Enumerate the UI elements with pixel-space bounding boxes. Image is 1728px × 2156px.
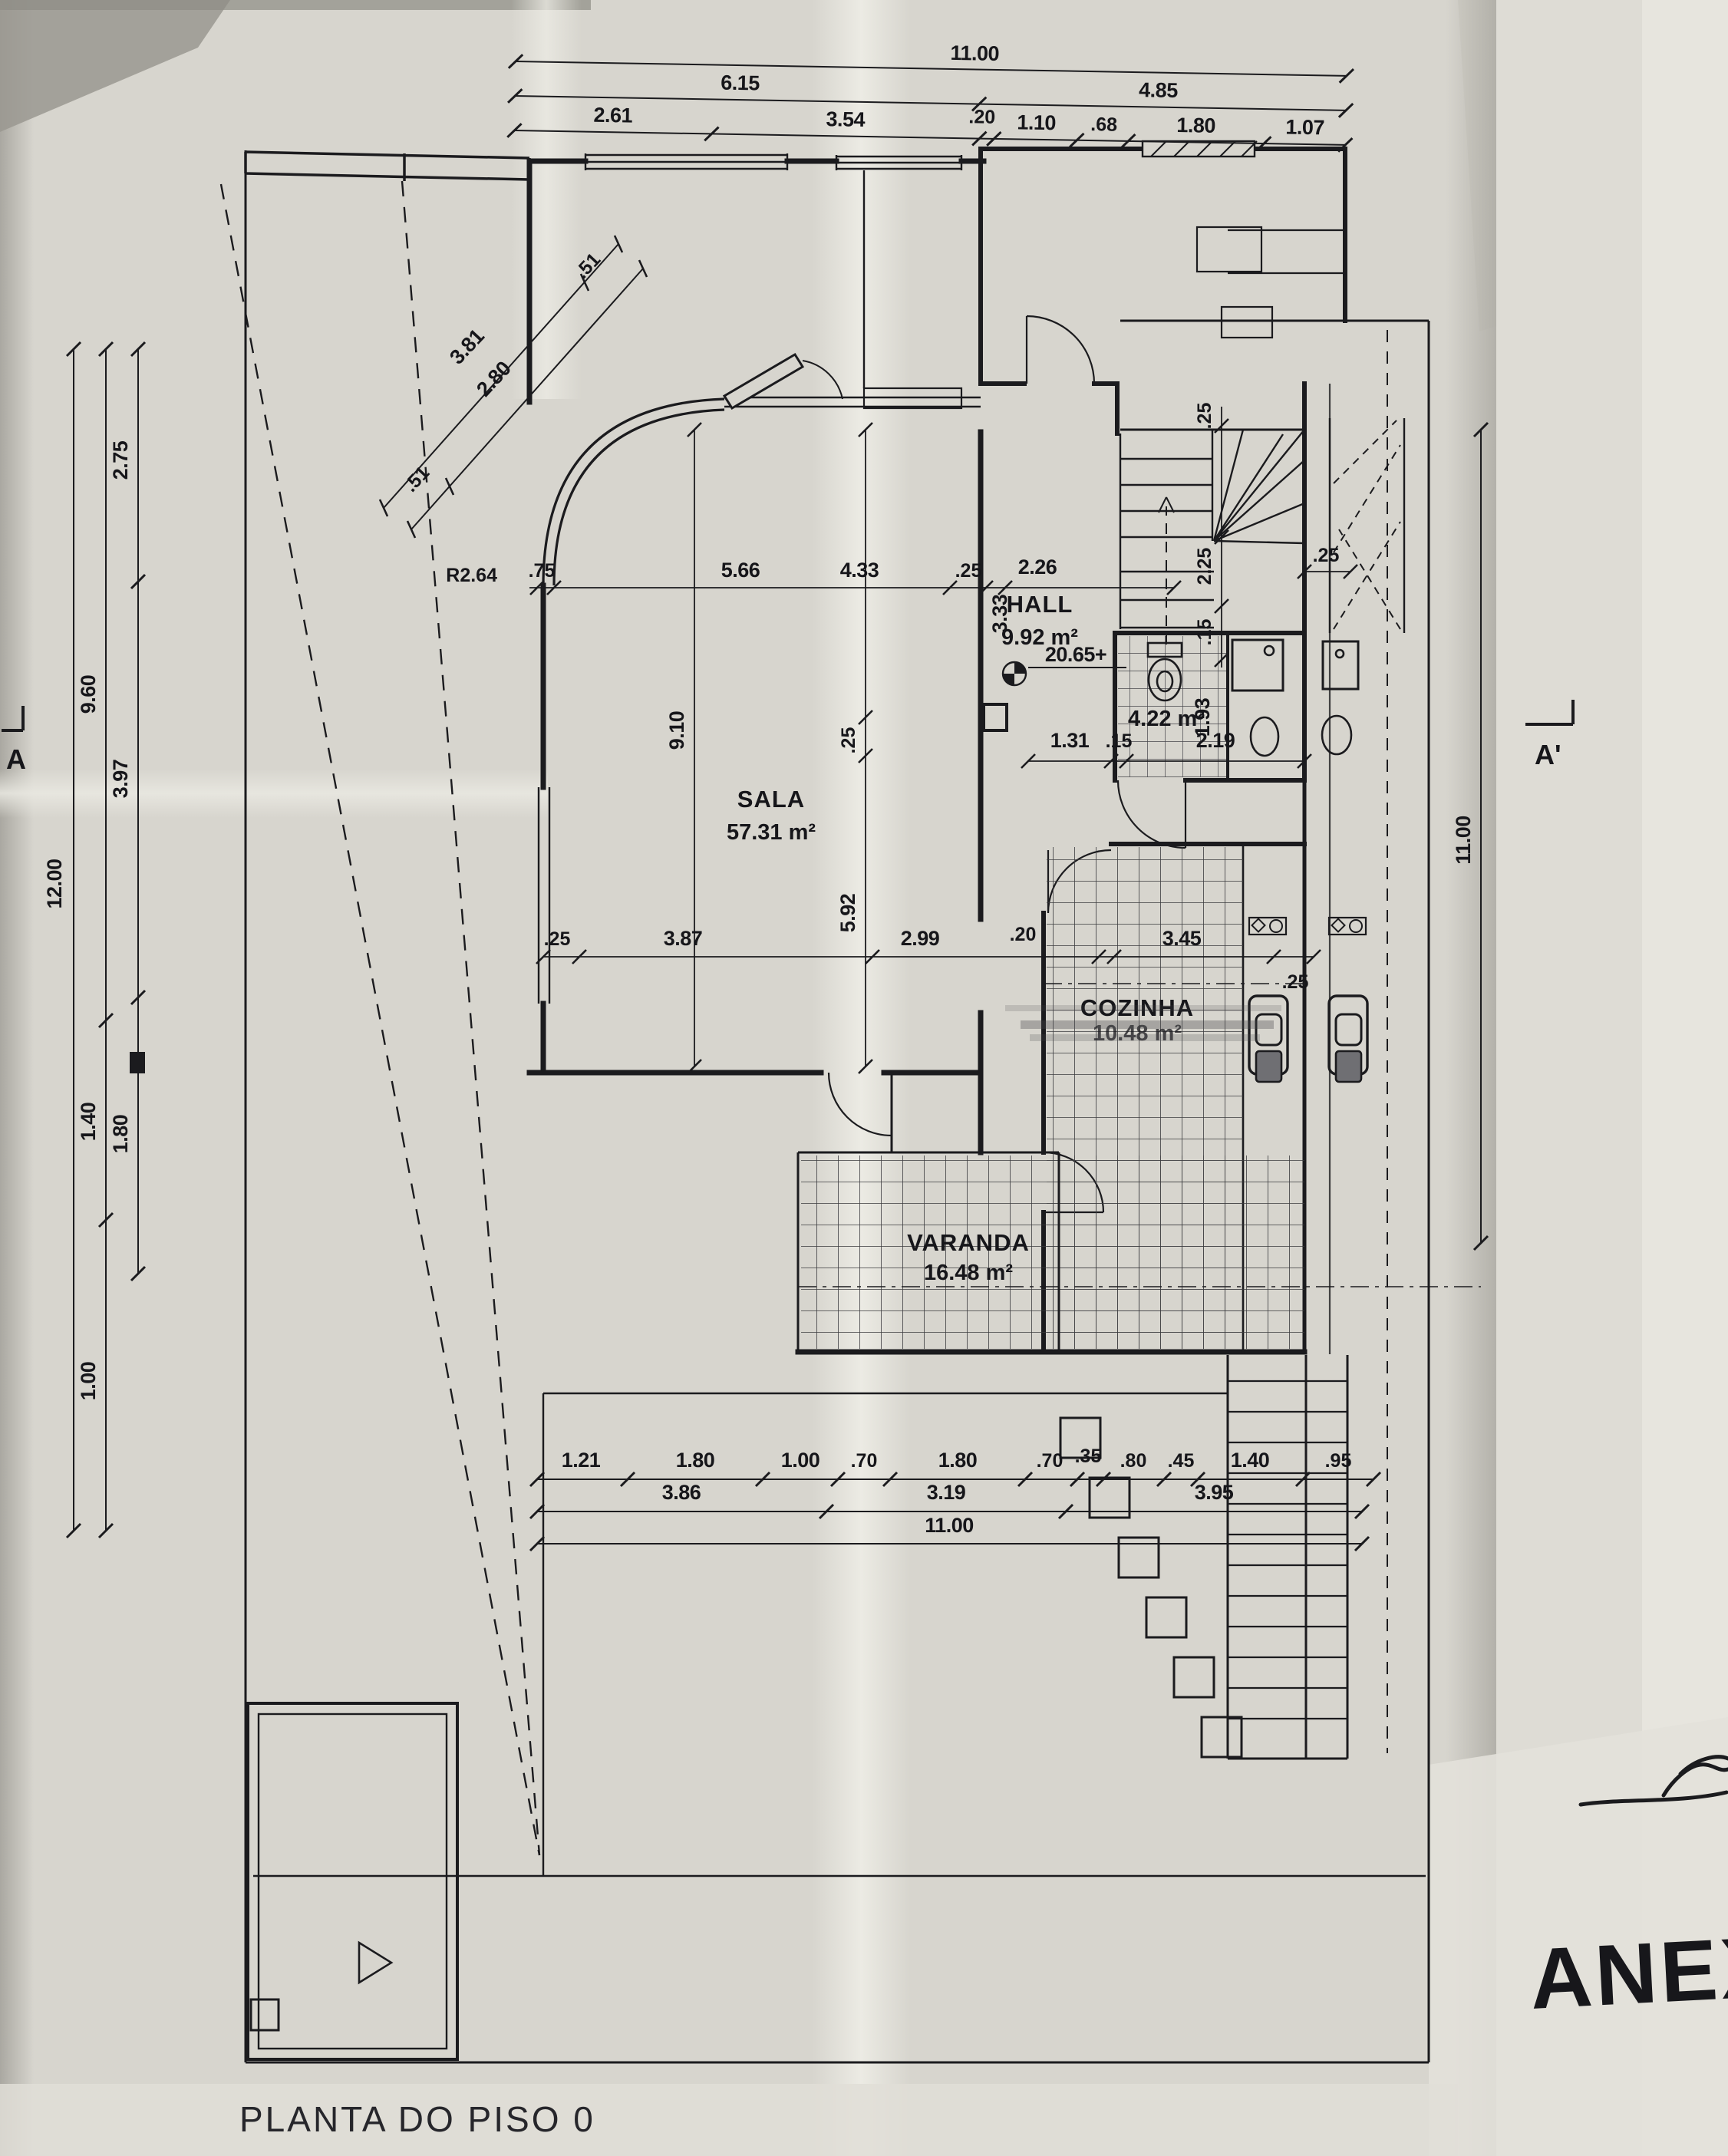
dim-label: 2.61 <box>593 104 633 127</box>
dim-label: 4.85 <box>1139 78 1179 102</box>
dim-label: 1.31 <box>1050 729 1090 752</box>
dim-label: 1.00 <box>781 1449 820 1472</box>
varanda-tiles <box>801 1155 1304 1349</box>
dim-label: 3.86 <box>662 1481 701 1504</box>
dim-label: .25 <box>1194 403 1215 430</box>
dim-label: 3.97 <box>109 760 132 799</box>
photographed-floor-plan: 11.00 6.15 4.85 2.61 3.54 .20 1.10 .68 1… <box>0 0 1728 2156</box>
dim-label: .25 <box>838 727 859 754</box>
dim-label: .68 <box>1090 114 1117 136</box>
room-name: VARANDA <box>907 1229 1030 1256</box>
section-label-a-prime: A' <box>1535 739 1561 770</box>
dim-label: .80 <box>1120 1450 1147 1472</box>
dim-label: 11.00 <box>1452 816 1475 865</box>
dim-label: 3.95 <box>1195 1481 1234 1504</box>
paper-crease-horizontal <box>0 769 548 818</box>
dim-label: .15 <box>1106 730 1133 752</box>
dim-label: .35 <box>1075 1446 1102 1467</box>
room-area: 16.48 m² <box>924 1261 1013 1285</box>
dim-label: 9.10 <box>665 711 688 750</box>
dim-label: .25 <box>1282 971 1309 993</box>
dim-label: 5.66 <box>721 559 760 582</box>
dim-label: .75 <box>529 560 556 582</box>
room-name: SALA <box>737 786 805 813</box>
dim-label: 1.80 <box>676 1449 715 1472</box>
paper-crease-top <box>511 0 582 399</box>
dim-label: 1.40 <box>1231 1449 1270 1472</box>
dim-label: .20 <box>1010 924 1037 945</box>
dim-label: 3.54 <box>826 107 866 131</box>
room-area: 57.31 m² <box>727 820 816 845</box>
dim-label: 4.33 <box>840 559 879 582</box>
dim-label: 1.21 <box>562 1449 601 1472</box>
dim-label: 2.25 <box>1194 548 1215 585</box>
dim-label: 11.00 <box>925 1514 974 1537</box>
dim-label: .20 <box>968 106 995 128</box>
dim-label: 1.00 <box>77 1362 100 1401</box>
dim-label: .70 <box>1037 1450 1064 1472</box>
dim-label: 11.00 <box>950 41 999 65</box>
dim-label: 3.19 <box>927 1481 966 1504</box>
radius-label: R2.64 <box>446 565 497 586</box>
dim-label: 2.75 <box>109 440 132 480</box>
floor-plan-drawing: 11.00 6.15 4.85 2.61 3.54 .20 1.10 .68 1… <box>0 0 1728 2156</box>
dim-label: 1.80 <box>1176 114 1215 137</box>
dim-label: 1.07 <box>1285 116 1324 140</box>
dim-label: 1.40 <box>77 1103 100 1142</box>
dim-label: 3.45 <box>1162 927 1202 950</box>
dim-label: 1.80 <box>109 1115 132 1154</box>
dim-label: 5.92 <box>836 894 859 933</box>
dim-label: .95 <box>1325 1450 1352 1472</box>
dim-label: 3.87 <box>664 927 703 950</box>
dim-label: .25 <box>544 928 571 950</box>
dim-label: 1.10 <box>1017 110 1056 134</box>
dim-label: 9.60 <box>77 675 100 714</box>
section-label-a: A <box>6 743 26 775</box>
annex-note: ANEXO <box>1528 1914 1728 2027</box>
room-name: HALL <box>1007 591 1073 618</box>
dim-label: .15 <box>1194 619 1215 646</box>
level-value: 20.65+ <box>1045 643 1106 666</box>
dim-label: 1.80 <box>938 1449 978 1472</box>
window-top-2 <box>836 155 961 170</box>
dim-label: .45 <box>1168 1450 1195 1472</box>
print-smear <box>1005 1005 1281 1041</box>
room-area: 4.22 m² <box>1128 707 1205 731</box>
paper-crease-vertical <box>812 0 910 2156</box>
dim-label: 2.99 <box>901 927 940 950</box>
dim-label: .25 <box>955 560 982 582</box>
dim-label: .70 <box>851 1450 878 1472</box>
dim-label: 6.15 <box>721 71 760 95</box>
dim-label: 2.26 <box>1018 555 1057 579</box>
dim-label: 12.00 <box>43 859 66 908</box>
drawing-title: PLANTA DO PISO 0 <box>239 2099 595 2139</box>
dim-label: .25 <box>1313 545 1340 566</box>
